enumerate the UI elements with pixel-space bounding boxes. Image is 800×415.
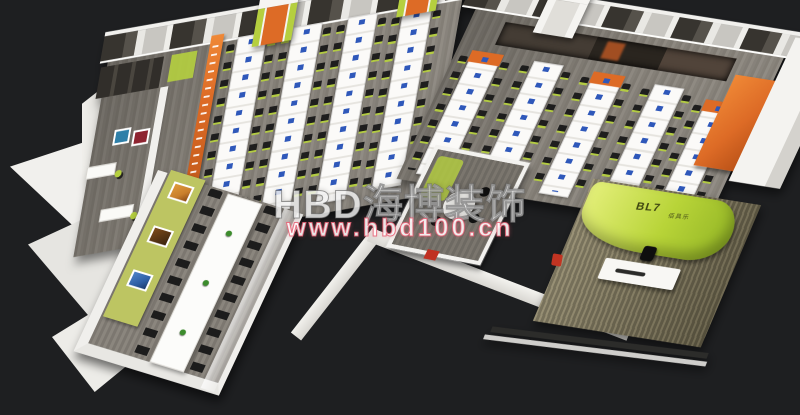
orange-light-glow bbox=[600, 41, 626, 61]
table-plant bbox=[179, 329, 187, 336]
render-canvas: BL7 佰具乐 HBD海博装饰 www.hbd100.cn bbox=[0, 0, 800, 415]
green-wall-chip bbox=[167, 50, 197, 82]
cabinet-strip bbox=[96, 56, 165, 99]
watermark-url: www.hbd100.cn bbox=[286, 214, 513, 243]
art-frame-blue bbox=[129, 272, 151, 290]
artwork-red bbox=[133, 130, 148, 144]
watermark-url-row: www.hbd100.cn bbox=[0, 214, 800, 243]
counter-slot bbox=[615, 268, 646, 276]
reception-counter bbox=[597, 258, 681, 291]
red-chair-accent bbox=[551, 253, 563, 267]
south-wall-left bbox=[291, 227, 384, 341]
artwork-teal bbox=[114, 130, 129, 144]
table-plant bbox=[202, 279, 210, 286]
